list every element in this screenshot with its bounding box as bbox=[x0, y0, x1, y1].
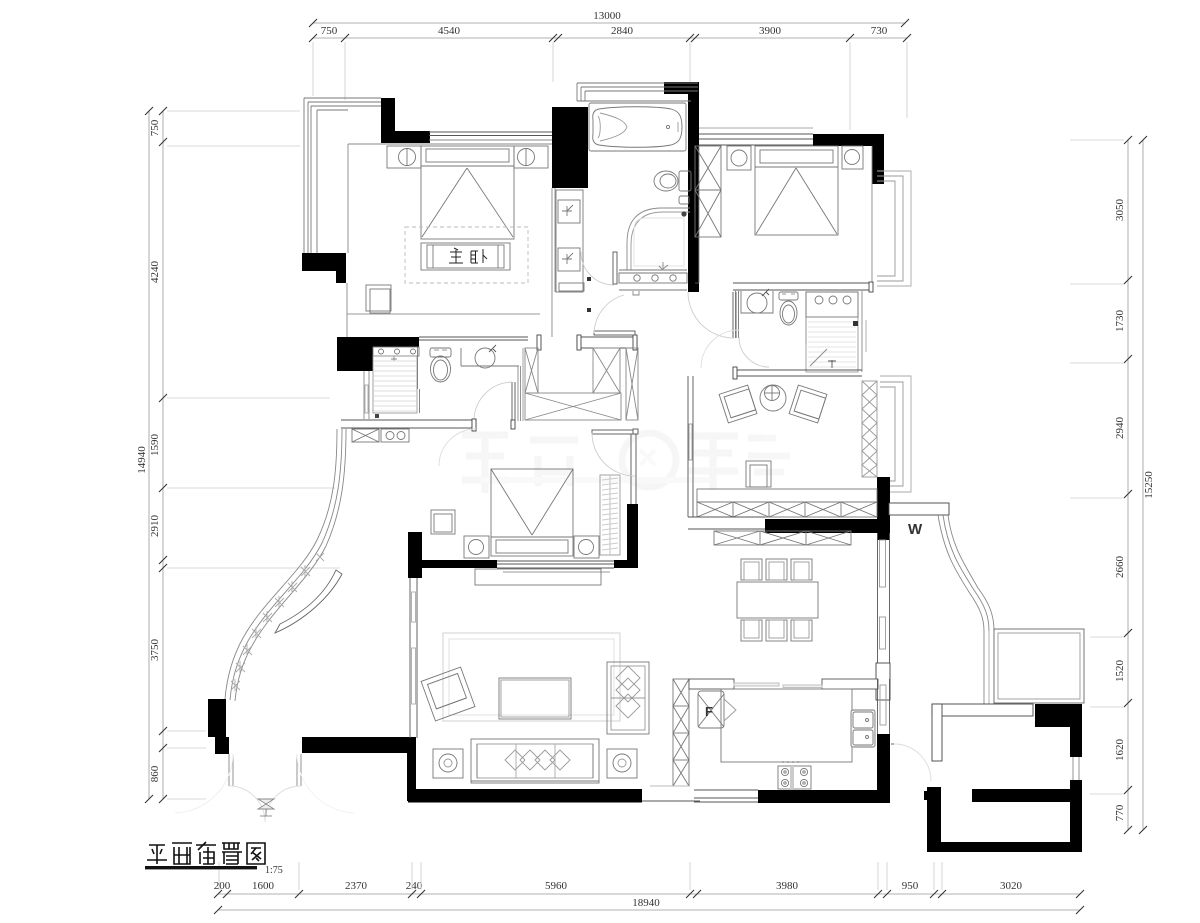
svg-text:4540: 4540 bbox=[438, 25, 461, 37]
svg-text:750: 750 bbox=[321, 25, 338, 37]
svg-text:5960: 5960 bbox=[545, 880, 568, 892]
svg-text:14940: 14940 bbox=[136, 446, 148, 474]
svg-text:1590: 1590 bbox=[149, 434, 161, 457]
svg-text:1620: 1620 bbox=[1114, 739, 1126, 762]
svg-text:1730: 1730 bbox=[1114, 310, 1126, 333]
svg-text:200: 200 bbox=[214, 880, 231, 892]
svg-text:3020: 3020 bbox=[1000, 880, 1023, 892]
svg-text:730: 730 bbox=[871, 25, 888, 37]
svg-text:F: F bbox=[705, 704, 713, 719]
svg-text:750: 750 bbox=[149, 119, 161, 136]
svg-text:3900: 3900 bbox=[759, 25, 782, 37]
svg-text:3980: 3980 bbox=[776, 880, 799, 892]
svg-text:3750: 3750 bbox=[149, 639, 161, 662]
svg-text:950: 950 bbox=[902, 880, 919, 892]
svg-text:1520: 1520 bbox=[1114, 660, 1126, 683]
svg-text:1600: 1600 bbox=[252, 880, 275, 892]
svg-text:13000: 13000 bbox=[593, 10, 621, 22]
svg-text:2840: 2840 bbox=[611, 25, 634, 37]
svg-text:2370: 2370 bbox=[345, 880, 368, 892]
svg-text:4240: 4240 bbox=[149, 261, 161, 284]
svg-text:18940: 18940 bbox=[632, 897, 660, 909]
svg-text:2660: 2660 bbox=[1114, 556, 1126, 579]
svg-text:15250: 15250 bbox=[1143, 471, 1155, 499]
svg-text:860: 860 bbox=[149, 765, 161, 782]
svg-text:770: 770 bbox=[1114, 804, 1126, 821]
svg-text:1:75: 1:75 bbox=[265, 865, 283, 876]
svg-text:240: 240 bbox=[406, 880, 423, 892]
svg-text:2910: 2910 bbox=[149, 515, 161, 538]
svg-text:2940: 2940 bbox=[1114, 417, 1126, 440]
svg-text:W: W bbox=[908, 521, 923, 538]
svg-text:3050: 3050 bbox=[1114, 199, 1126, 222]
